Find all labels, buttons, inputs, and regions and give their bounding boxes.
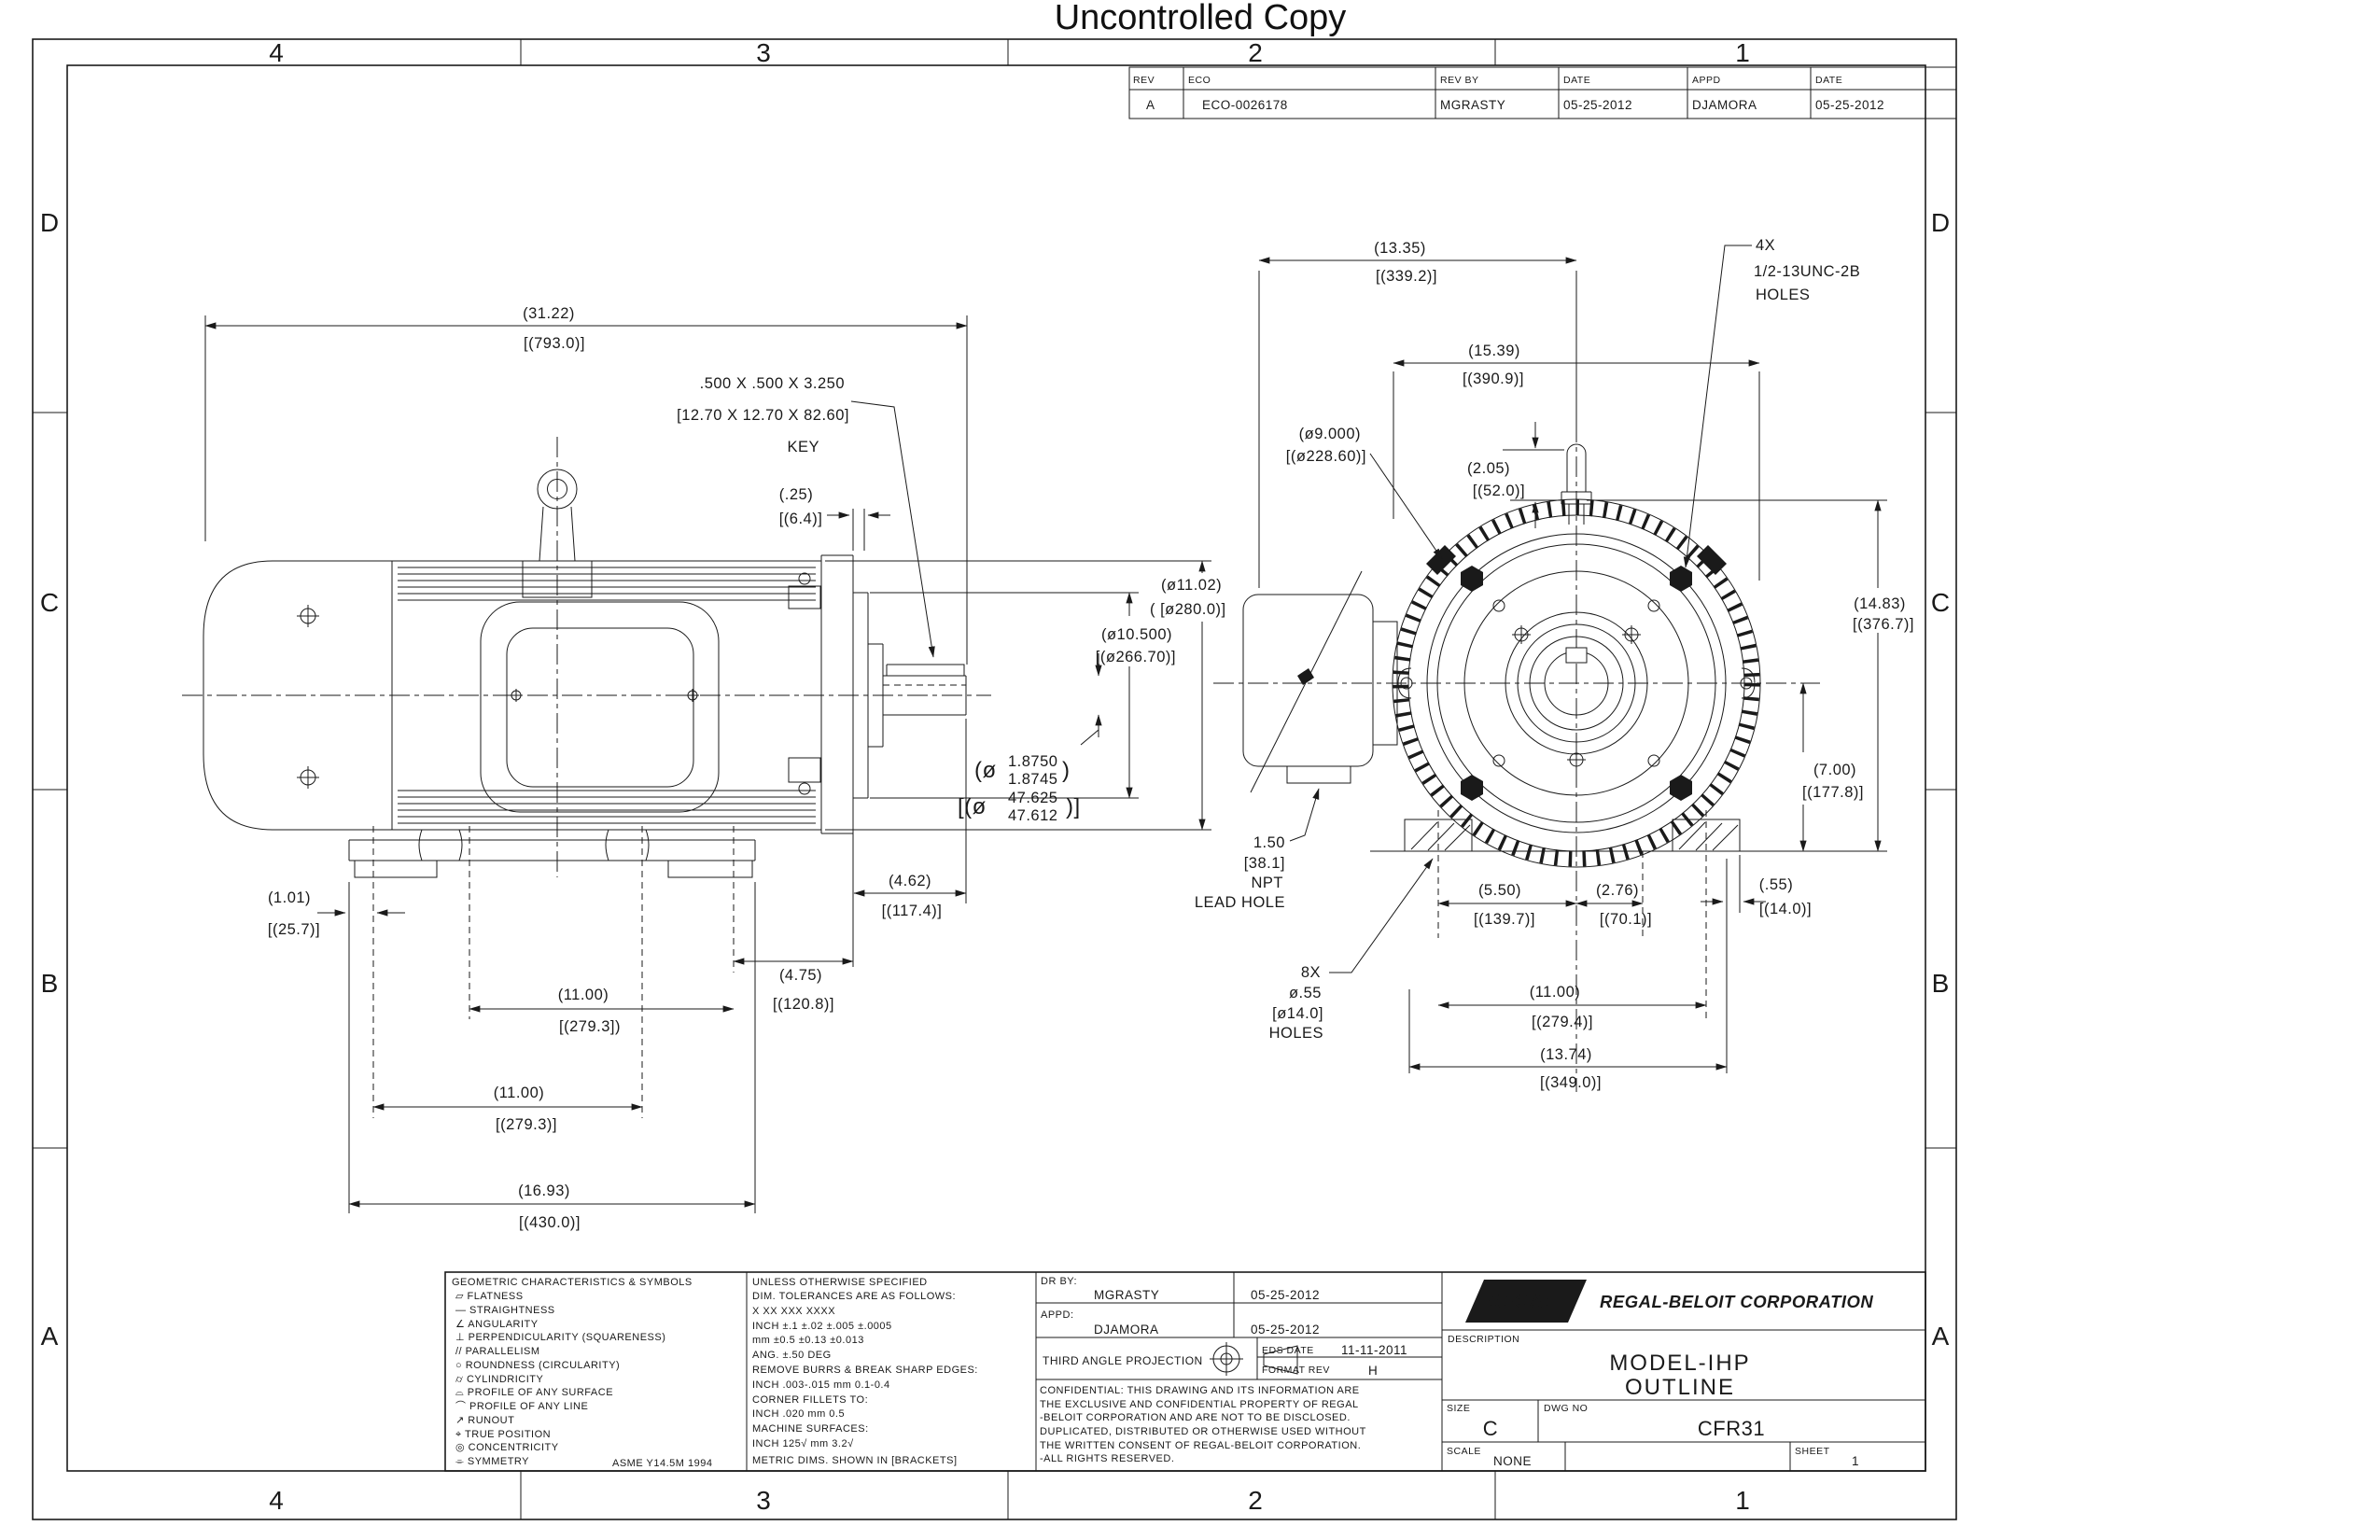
zone-col-1-bottom: 1 bbox=[1735, 1486, 1750, 1515]
dim-e1-in: (5.50) bbox=[1478, 882, 1521, 899]
description-label: DESCRIPTION bbox=[1448, 1334, 1519, 1345]
dim-base-len-in: (16.93) bbox=[518, 1183, 570, 1199]
dim-edge-mm: [(14.0)] bbox=[1759, 901, 1812, 917]
note-foot-holes-dia: ø.55 bbox=[1289, 985, 1322, 1001]
legend-item-roundness: ○ ROUNDNESS (CIRCULARITY) bbox=[455, 1360, 620, 1371]
note-tap-holes: HOLES bbox=[1756, 287, 1810, 303]
scale-value: NONE bbox=[1493, 1454, 1532, 1468]
sheet-label: SHEET bbox=[1795, 1446, 1830, 1457]
note-foot-holes-label: HOLES bbox=[1269, 1025, 1323, 1042]
legend-item-symmetry: ⌯ SYMMETRY bbox=[455, 1456, 529, 1467]
note-key-in: .500 X .500 X 3.250 bbox=[700, 375, 845, 392]
regal-logo-text: REGAL bbox=[1488, 1292, 1556, 1312]
note-foot-holes-count: 8X bbox=[1301, 964, 1321, 981]
dim-od-in: (ø11.02) bbox=[1161, 577, 1222, 594]
zone-col-3-top: 3 bbox=[756, 38, 771, 67]
uncontrolled-copy-stamp: Uncontrolled Copy bbox=[1055, 0, 1347, 37]
dim-overall-mm: [(793.0)] bbox=[524, 335, 585, 352]
appd-header: APPD bbox=[1692, 75, 1721, 86]
date-header: DATE bbox=[1563, 75, 1590, 86]
dim-shaft-in-open: (ø bbox=[974, 758, 997, 783]
confidential-line-2: -BELOIT CORPORATION AND ARE NOT TO BE DI… bbox=[1040, 1412, 1351, 1423]
legend-title: GEOMETRIC CHARACTERISTICS & SYMBOLS bbox=[452, 1277, 693, 1288]
dim-totalh-mm: [(376.7)] bbox=[1853, 616, 1914, 633]
note-foot-holes-mm: [ø14.0] bbox=[1272, 1005, 1323, 1022]
dim-stud-mm: [(52.0)] bbox=[1473, 483, 1525, 499]
dim-f2-mm: [(279.3)] bbox=[496, 1116, 557, 1133]
confidential-line-3: DUPLICATED, DISTRIBUTED OR OTHERWISE USE… bbox=[1040, 1426, 1366, 1437]
dim-stud-in: (2.05) bbox=[1467, 460, 1510, 477]
confidential-line-0: CONFIDENTIAL: THIS DRAWING AND ITS INFOR… bbox=[1040, 1385, 1360, 1396]
symbols-legend: GEOMETRIC CHARACTERISTICS & SYMBOLS ▱ FL… bbox=[452, 1277, 712, 1469]
tol-line-8: CORNER FILLETS TO: bbox=[752, 1394, 868, 1406]
legend-item-straightness: — STRAIGHTNESS bbox=[455, 1305, 555, 1316]
size-label: SIZE bbox=[1447, 1403, 1470, 1414]
rev-header: REV bbox=[1133, 75, 1155, 86]
sheet-value: 1 bbox=[1852, 1454, 1859, 1468]
dim-ba-mm: [(349.0)] bbox=[1540, 1074, 1602, 1091]
tol-line-12: METRIC DIMS. SHOWN IN [BRACKETS] bbox=[752, 1455, 958, 1466]
legend-standard: ASME Y14.5M 1994 bbox=[612, 1458, 712, 1469]
dim-e1-mm: [(139.7)] bbox=[1474, 911, 1535, 928]
dim-edge-in: (.55) bbox=[1759, 876, 1793, 893]
confidential-line-4: THE WRITTEN CONSENT OF REGAL-BELOIT CORP… bbox=[1040, 1440, 1361, 1451]
dim-gap-mm: [(6.4)] bbox=[779, 511, 823, 527]
drawing-sheet: Uncontrolled Copy 4 3 2 1 4 3 2 1 D C B … bbox=[0, 0, 2380, 1540]
dim-overall-in: (31.22) bbox=[523, 305, 575, 322]
company-name: REGAL-BELOIT CORPORATION bbox=[1600, 1292, 1873, 1311]
tol-line-7: INCH .003-.015 mm 0.1-0.4 bbox=[752, 1379, 890, 1391]
zone-row-b-left: B bbox=[41, 969, 59, 998]
date2-value: 05-25-2012 bbox=[1815, 98, 1884, 112]
tol-line-1: DIM. TOLERANCES ARE AS FOLLOWS: bbox=[752, 1291, 956, 1302]
dim-base-len-mm: [(430.0)] bbox=[519, 1214, 581, 1231]
legend-item-perpendicularity: ⊥ PERPENDICULARITY (SQUARENESS) bbox=[455, 1332, 665, 1343]
description-line-2: OUTLINE bbox=[1625, 1375, 1735, 1400]
zone-col-3-bottom: 3 bbox=[756, 1486, 771, 1515]
tol-line-0: UNLESS OTHERWISE SPECIFIED bbox=[752, 1277, 928, 1288]
dim-shaft-mm-top: 47.625 bbox=[1008, 790, 1057, 806]
format-rev-value: H bbox=[1368, 1364, 1378, 1378]
dim-shaft-in-bottom: 1.8745 bbox=[1008, 771, 1057, 788]
dim-od-mm: ( [ø280.0)] bbox=[1150, 601, 1226, 618]
size-value: C bbox=[1483, 1417, 1498, 1440]
dim-e2-mm: [(70.1)] bbox=[1600, 911, 1652, 928]
format-rev-label: FORMAT REV bbox=[1262, 1365, 1330, 1376]
dim-finw-in: (15.39) bbox=[1468, 343, 1520, 359]
legend-item-parallelism: // PARALLELISM bbox=[455, 1346, 540, 1357]
dim-ak-mm: [(ø228.60)] bbox=[1286, 448, 1366, 465]
rev-by-header: REV BY bbox=[1440, 75, 1479, 86]
date2-header: DATE bbox=[1815, 75, 1842, 86]
tol-line-9: INCH .020 mm 0.5 bbox=[752, 1408, 845, 1420]
dim-c-in: (13.35) bbox=[1374, 240, 1426, 257]
dim-foot-edge-in: (1.01) bbox=[268, 889, 311, 906]
dim-shaft-ext-mm: [(117.4)] bbox=[882, 903, 943, 919]
legend-item-runout: ↗ RUNOUT bbox=[455, 1415, 514, 1426]
drawing-canvas: Uncontrolled Copy 4 3 2 1 4 3 2 1 D C B … bbox=[0, 0, 2380, 1540]
note-npt-size: 1.50 bbox=[1253, 834, 1285, 851]
dim-finw-mm: [(390.9)] bbox=[1463, 371, 1524, 387]
legend-item-profile-surface: ⌓ PROFILE OF ANY SURFACE bbox=[455, 1387, 613, 1398]
side-view-drawing bbox=[182, 437, 991, 1213]
eds-date-value: 11-11-2011 bbox=[1341, 1343, 1407, 1357]
dim-f3-mm: [(279.4)] bbox=[1532, 1014, 1593, 1030]
appd-label: APPD: bbox=[1041, 1309, 1074, 1321]
appd-value: DJAMORA bbox=[1094, 1323, 1159, 1337]
zone-row-c-left: C bbox=[40, 588, 59, 617]
side-view-dimensions: (31.22) [(793.0)] .500 X .500 X 3.250 [1… bbox=[205, 305, 1226, 1231]
confidential-line-1: THE EXCLUSIVE AND CONFIDENTIAL PROPERTY … bbox=[1040, 1399, 1359, 1410]
zone-row-d-right: D bbox=[1931, 208, 1950, 237]
revision-table: REV ECO REV BY DATE APPD DATE A ECO-0026… bbox=[1129, 67, 1956, 119]
note-tap-count: 4X bbox=[1756, 237, 1775, 254]
dim-rabbet-mm: [(ø266.70)] bbox=[1096, 649, 1176, 665]
dim-shaft-in-top: 1.8750 bbox=[1008, 753, 1057, 770]
approval-block: DR BY: MGRASTY 05-25-2012 APPD: DJAMORA … bbox=[1040, 1276, 1407, 1464]
confidential-line-5: -ALL RIGHTS RESERVED. bbox=[1040, 1453, 1174, 1464]
dim-foot-edge-mm: [(25.7)] bbox=[268, 921, 320, 938]
title-block: GEOMETRIC CHARACTERISTICS & SYMBOLS ▱ FL… bbox=[445, 1272, 1925, 1471]
dwg-no-label: DWG NO bbox=[1544, 1403, 1588, 1414]
tol-line-6: REMOVE BURRS & BREAK SHARP EDGES: bbox=[752, 1365, 978, 1376]
dim-f3-in: (11.00) bbox=[1530, 984, 1581, 1001]
date-value: 05-25-2012 bbox=[1563, 98, 1632, 112]
rev-value: A bbox=[1146, 98, 1155, 112]
dim-ak-in: (ø9.000) bbox=[1299, 426, 1361, 442]
legend-item-angularity: ∠ ANGULARITY bbox=[455, 1319, 539, 1330]
dr-by-value: MGRASTY bbox=[1094, 1288, 1159, 1302]
dim-shaft-mm-open: [(ø bbox=[958, 794, 987, 819]
note-npt-mm: [38.1] bbox=[1244, 855, 1285, 872]
dim-gap-in: (.25) bbox=[779, 486, 813, 503]
zone-row-a-left: A bbox=[41, 1322, 59, 1351]
zone-row-a-right: A bbox=[1932, 1322, 1950, 1351]
appd-value: DJAMORA bbox=[1692, 98, 1757, 112]
tol-line-3: INCH ±.1 ±.02 ±.005 ±.0005 bbox=[752, 1321, 892, 1332]
tol-line-2: X XX XXX XXXX bbox=[752, 1306, 835, 1317]
tolerance-notes: UNLESS OTHERWISE SPECIFIED DIM. TOLERANC… bbox=[752, 1277, 978, 1466]
zone-col-1-top: 1 bbox=[1735, 38, 1750, 67]
dim-c-mm: [(339.2)] bbox=[1376, 268, 1437, 285]
dim-shafth-mm: [(177.8)] bbox=[1802, 784, 1864, 801]
dwg-no-value: CFR31 bbox=[1698, 1417, 1765, 1440]
zone-col-4-top: 4 bbox=[269, 38, 284, 67]
note-key-label: KEY bbox=[787, 439, 819, 455]
eds-date-label: EDS DATE bbox=[1262, 1345, 1314, 1356]
legend-item-true-position: ⌖ TRUE POSITION bbox=[455, 1429, 551, 1440]
dr-by-label: DR BY: bbox=[1041, 1276, 1077, 1287]
front-view-dimensions: (13.35) [(339.2)] (15.39) [(390.9)] 4X 1… bbox=[1195, 237, 1914, 1091]
zone-col-2-top: 2 bbox=[1248, 38, 1263, 67]
description-line-1: MODEL-IHP bbox=[1609, 1351, 1750, 1376]
dr-date-value: 05-25-2012 bbox=[1251, 1288, 1320, 1302]
legend-item-profile-line: ⌒ PROFILE OF ANY LINE bbox=[455, 1400, 588, 1412]
note-tap-thread: 1/2-13UNC-2B bbox=[1754, 263, 1860, 280]
legend-item-flatness: ▱ FLATNESS bbox=[455, 1291, 524, 1302]
eco-header: ECO bbox=[1188, 75, 1211, 86]
dim-shaft-mm-close: )] bbox=[1066, 794, 1081, 819]
tol-line-10: MACHINE SURFACES: bbox=[752, 1423, 869, 1435]
note-key-mm: [12.70 X 12.70 X 82.60] bbox=[677, 407, 849, 424]
tol-line-4: mm ±0.5 ±0.13 ±0.013 bbox=[752, 1335, 864, 1346]
zone-row-b-right: B bbox=[1932, 969, 1950, 998]
zone-col-2-bottom: 2 bbox=[1248, 1486, 1263, 1515]
dim-ab-in: (4.75) bbox=[779, 967, 822, 984]
drawing-id-block: REGAL REGAL-BELOIT CORPORATION DESCRIPTI… bbox=[1447, 1280, 1873, 1468]
zone-row-d-left: D bbox=[40, 208, 59, 237]
dim-ba-in: (13.74) bbox=[1540, 1046, 1592, 1063]
legend-item-concentricity: ◎ CONCENTRICITY bbox=[455, 1442, 559, 1453]
dim-shaft-ext-in: (4.62) bbox=[889, 873, 931, 889]
dim-rabbet-in: (ø10.500) bbox=[1101, 626, 1172, 643]
tol-line-5: ANG. ±.50 DEG bbox=[752, 1350, 832, 1361]
dim-ab-mm: [(120.8)] bbox=[773, 996, 834, 1013]
dim-e2-in: (2.76) bbox=[1596, 882, 1639, 899]
projection-label: THIRD ANGLE PROJECTION bbox=[1043, 1354, 1203, 1367]
dim-f2-in: (11.00) bbox=[494, 1085, 545, 1101]
dim-f1-in: (11.00) bbox=[558, 987, 609, 1003]
dim-shaft-in-close: ) bbox=[1062, 758, 1071, 783]
zone-col-4-bottom: 4 bbox=[269, 1486, 284, 1515]
note-npt-thread: NPT bbox=[1252, 875, 1284, 891]
dim-shafth-in: (7.00) bbox=[1813, 762, 1856, 778]
appd-date-value: 05-25-2012 bbox=[1251, 1323, 1320, 1337]
rev-by-value: MGRASTY bbox=[1440, 98, 1505, 112]
dim-f1-mm: [(279.3]) bbox=[559, 1018, 621, 1035]
dim-totalh-in: (14.83) bbox=[1854, 595, 1906, 612]
zone-row-c-right: C bbox=[1931, 588, 1950, 617]
note-npt-lead-hole: LEAD HOLE bbox=[1195, 894, 1285, 911]
dim-shaft-mm-bottom: 47.612 bbox=[1008, 807, 1057, 824]
tol-line-11: INCH 125√ mm 3.2√ bbox=[752, 1438, 854, 1449]
scale-label: SCALE bbox=[1447, 1446, 1481, 1457]
eco-value: ECO-0026178 bbox=[1202, 98, 1288, 112]
legend-item-cylindricity: ⌭ CYLINDRICITY bbox=[455, 1374, 544, 1385]
